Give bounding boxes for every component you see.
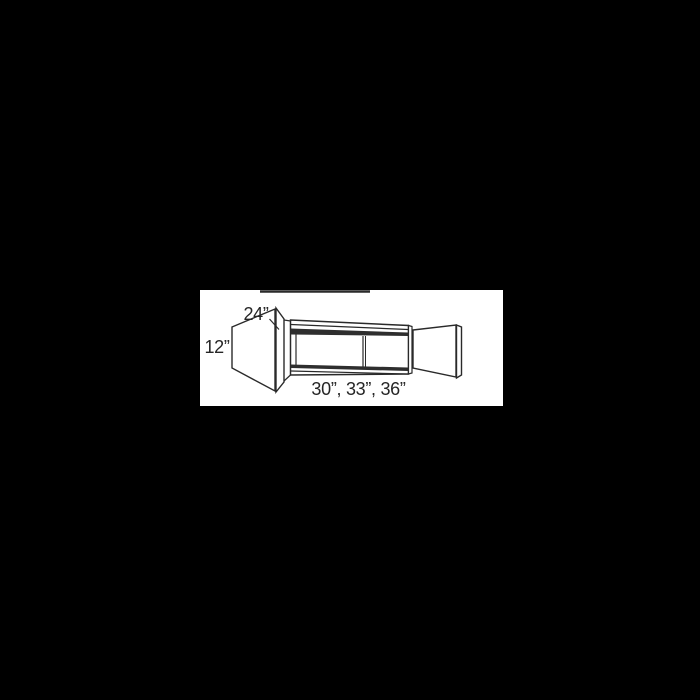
cabinet-right-cap [409, 326, 413, 375]
depth-label: 24” [243, 304, 268, 324]
product-image-panel: 24” 12” 30”, 33”, 36” [200, 290, 503, 406]
height-label: 12” [204, 337, 229, 357]
left-hinge-bottom-line [284, 375, 291, 381]
cabinet-diagram: 24” 12” 30”, 33”, 36” [200, 290, 503, 406]
right-door-edge [457, 325, 462, 378]
screen: 24” 12” 30”, 33”, 36” [0, 0, 700, 700]
width-options-label: 30”, 33”, 36” [311, 379, 405, 399]
right-door-face [413, 325, 456, 377]
left-door-edge [276, 308, 284, 392]
left-hinge-top-line [284, 320, 291, 321]
